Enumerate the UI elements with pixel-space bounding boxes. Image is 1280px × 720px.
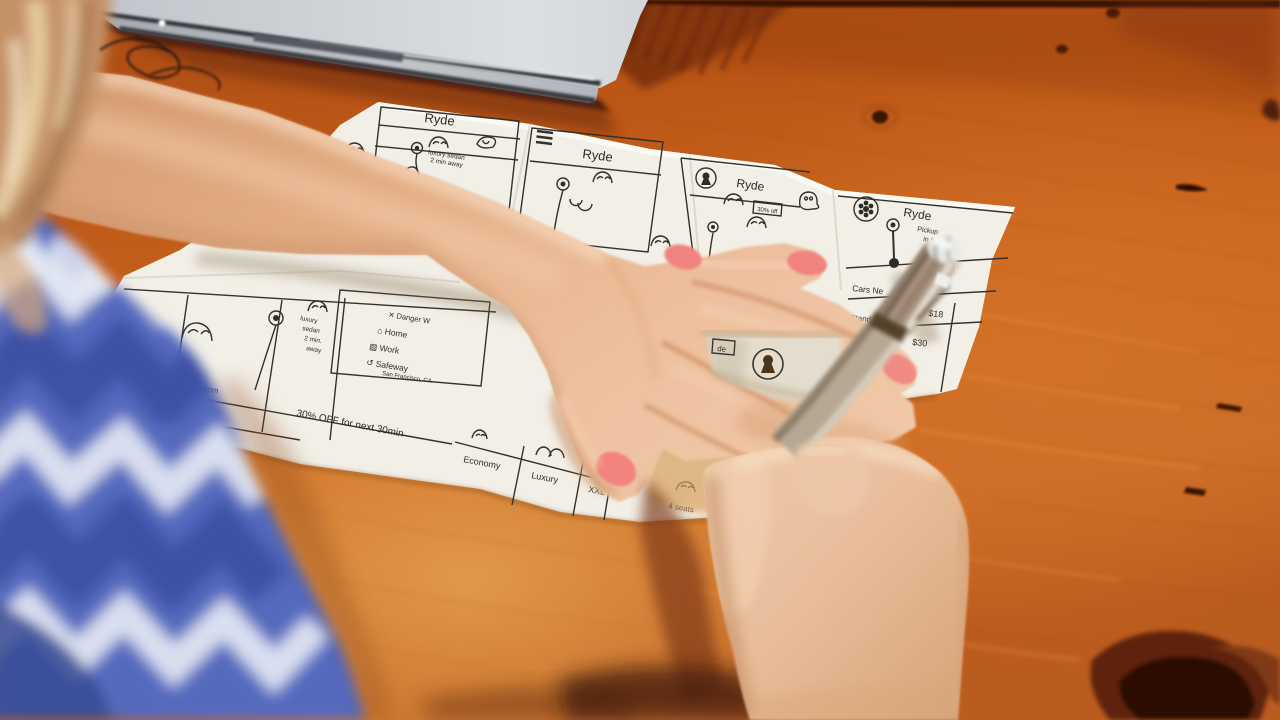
svg-text:de: de	[717, 344, 727, 354]
